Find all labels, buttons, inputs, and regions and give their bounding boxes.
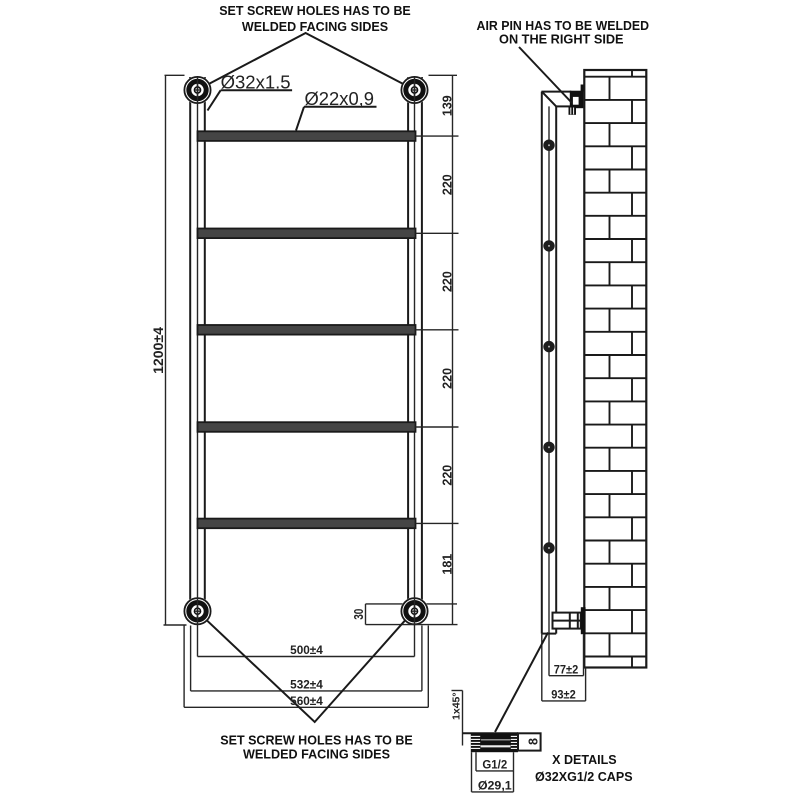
svg-text:Ø32x1.5: Ø32x1.5 (221, 72, 291, 93)
svg-text:Ø22x0,9: Ø22x0,9 (305, 88, 375, 109)
svg-text:1x45°: 1x45° (450, 692, 462, 720)
svg-text:8: 8 (526, 738, 540, 745)
svg-text:220: 220 (441, 174, 455, 195)
svg-text:560±4: 560±4 (290, 696, 323, 708)
svg-text:WELDED FACING SIDES: WELDED FACING SIDES (243, 747, 390, 762)
svg-text:Ø29,1: Ø29,1 (478, 778, 512, 792)
svg-text:220: 220 (441, 271, 455, 292)
svg-text:Ø32XG1/2 CAPS: Ø32XG1/2 CAPS (535, 769, 633, 784)
svg-text:77±2: 77±2 (554, 665, 579, 677)
svg-text:SET SCREW HOLES HAS TO BE: SET SCREW HOLES HAS TO BE (220, 733, 413, 748)
svg-text:139: 139 (441, 95, 455, 116)
svg-text:ON THE RIGHT SIDE: ON THE RIGHT SIDE (499, 32, 624, 47)
svg-text:X DETAILS: X DETAILS (552, 752, 617, 767)
svg-text:G1/2: G1/2 (482, 757, 507, 771)
svg-text:500±4: 500±4 (290, 645, 323, 657)
svg-text:181: 181 (441, 554, 455, 575)
svg-text:WELDED FACING SIDES: WELDED FACING SIDES (242, 19, 389, 34)
svg-text:1200±4: 1200±4 (151, 327, 166, 374)
svg-text:220: 220 (441, 465, 455, 486)
svg-text:30: 30 (352, 609, 366, 620)
svg-text:SET SCREW HOLES HAS TO BE: SET SCREW HOLES HAS TO BE (219, 3, 411, 18)
svg-text:532±4: 532±4 (290, 680, 323, 692)
svg-text:93±2: 93±2 (551, 690, 576, 702)
svg-text:220: 220 (441, 368, 455, 389)
